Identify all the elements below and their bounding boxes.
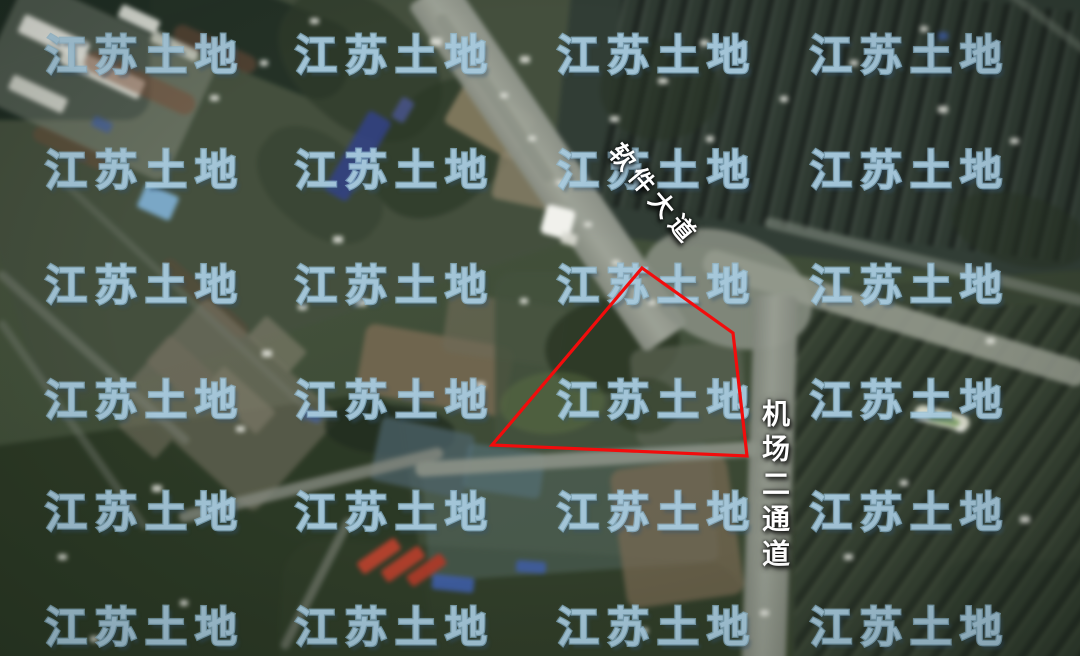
- building-speck: [866, 294, 876, 301]
- building-speck: [152, 485, 162, 492]
- building-speck: [298, 304, 307, 310]
- building-speck: [474, 382, 485, 389]
- building-speck: [920, 26, 928, 32]
- building-speck: [938, 106, 948, 113]
- building-speck: [900, 480, 908, 486]
- building-speck: [844, 554, 853, 560]
- map-texture-patch: [609, 454, 745, 609]
- satellite-imagery: [0, 0, 1080, 656]
- map-texture-patch: [938, 32, 948, 40]
- building-speck: [355, 298, 367, 306]
- map-texture-patch: [516, 560, 547, 574]
- map-texture-patch: [610, 378, 680, 433]
- satellite-map-view: 江苏土地江苏土地江苏土地江苏土地江苏土地江苏土地江苏土地江苏土地江苏土地江苏土地…: [0, 0, 1080, 656]
- building-speck: [700, 40, 709, 46]
- building-speck: [1010, 138, 1019, 144]
- building-speck: [180, 600, 188, 606]
- building-speck: [610, 116, 619, 122]
- building-speck: [556, 180, 564, 185]
- building-speck: [520, 56, 530, 63]
- building-speck: [760, 610, 769, 616]
- building-speck: [210, 95, 219, 101]
- building-speck: [430, 38, 442, 46]
- building-speck: [520, 298, 528, 304]
- building-speck: [956, 426, 965, 432]
- building-speck: [310, 18, 319, 24]
- building-speck: [706, 136, 714, 142]
- building-speck: [262, 350, 272, 357]
- building-speck: [780, 96, 788, 102]
- road-label-airport-second-corridor: 机场二通道: [754, 399, 794, 574]
- building-speck: [1020, 516, 1030, 523]
- building-speck: [584, 222, 592, 227]
- building-speck: [658, 78, 668, 84]
- building-speck: [58, 554, 67, 560]
- building-speck: [850, 60, 858, 66]
- building-speck: [528, 136, 536, 141]
- building-speck: [640, 628, 648, 634]
- map-texture-patch: [600, 40, 720, 140]
- building-speck: [986, 338, 995, 344]
- building-speck: [648, 300, 656, 305]
- building-speck: [90, 636, 98, 642]
- building-speck: [260, 60, 268, 66]
- building-speck: [236, 426, 245, 432]
- building-speck: [612, 260, 620, 265]
- building-speck: [333, 236, 343, 243]
- building-speck: [500, 93, 508, 98]
